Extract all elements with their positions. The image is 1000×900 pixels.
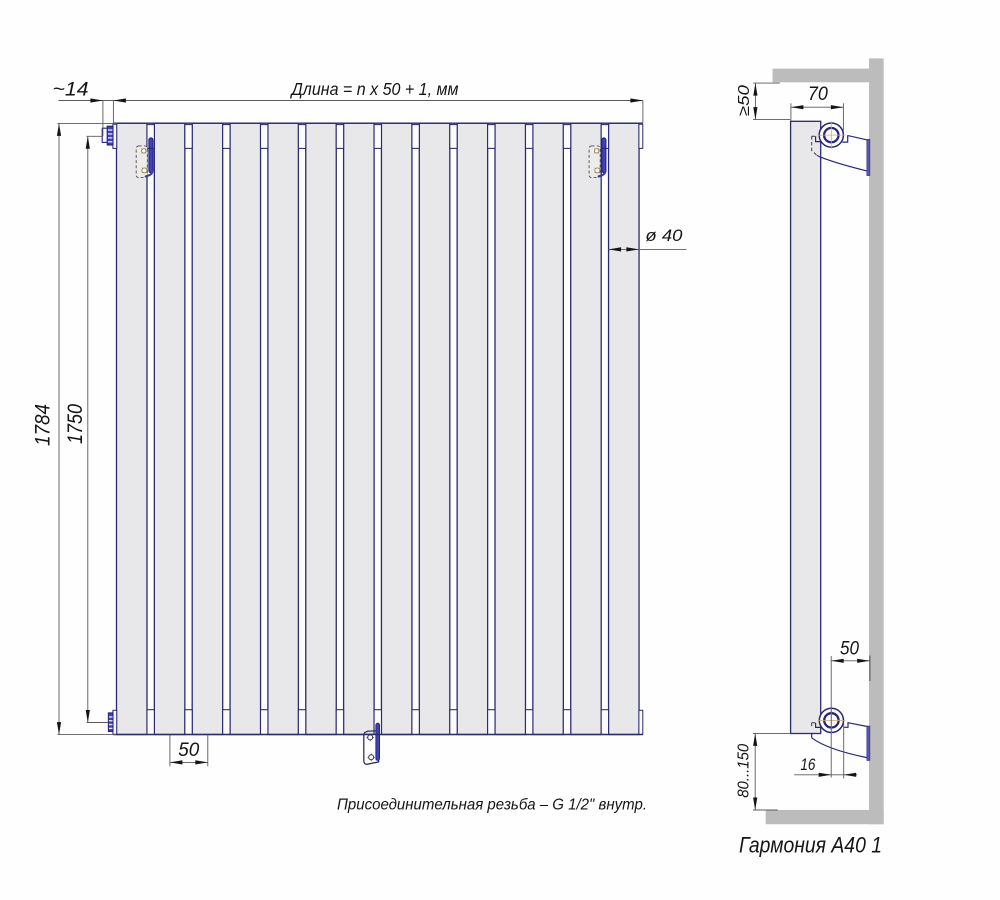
svg-text:Присоединительная резьба – G 1: Присоединительная резьба – G 1/2" внутр.	[337, 796, 647, 813]
svg-text:~14: ~14	[53, 79, 89, 100]
svg-text:ø 40: ø 40	[645, 227, 683, 245]
svg-text:16: 16	[800, 755, 815, 774]
svg-text:50: 50	[840, 638, 859, 659]
svg-text:≥50: ≥50	[736, 85, 753, 116]
svg-text:50: 50	[178, 740, 199, 761]
svg-text:70: 70	[808, 84, 828, 105]
svg-text:Гармония А40 1: Гармония А40 1	[739, 833, 882, 858]
svg-text:Длина = n x 50 + 1, мм: Длина = n x 50 + 1, мм	[290, 79, 459, 99]
svg-text:1750: 1750	[64, 404, 87, 444]
svg-text:1784: 1784	[32, 404, 55, 446]
svg-text:80...150: 80...150	[735, 743, 752, 797]
